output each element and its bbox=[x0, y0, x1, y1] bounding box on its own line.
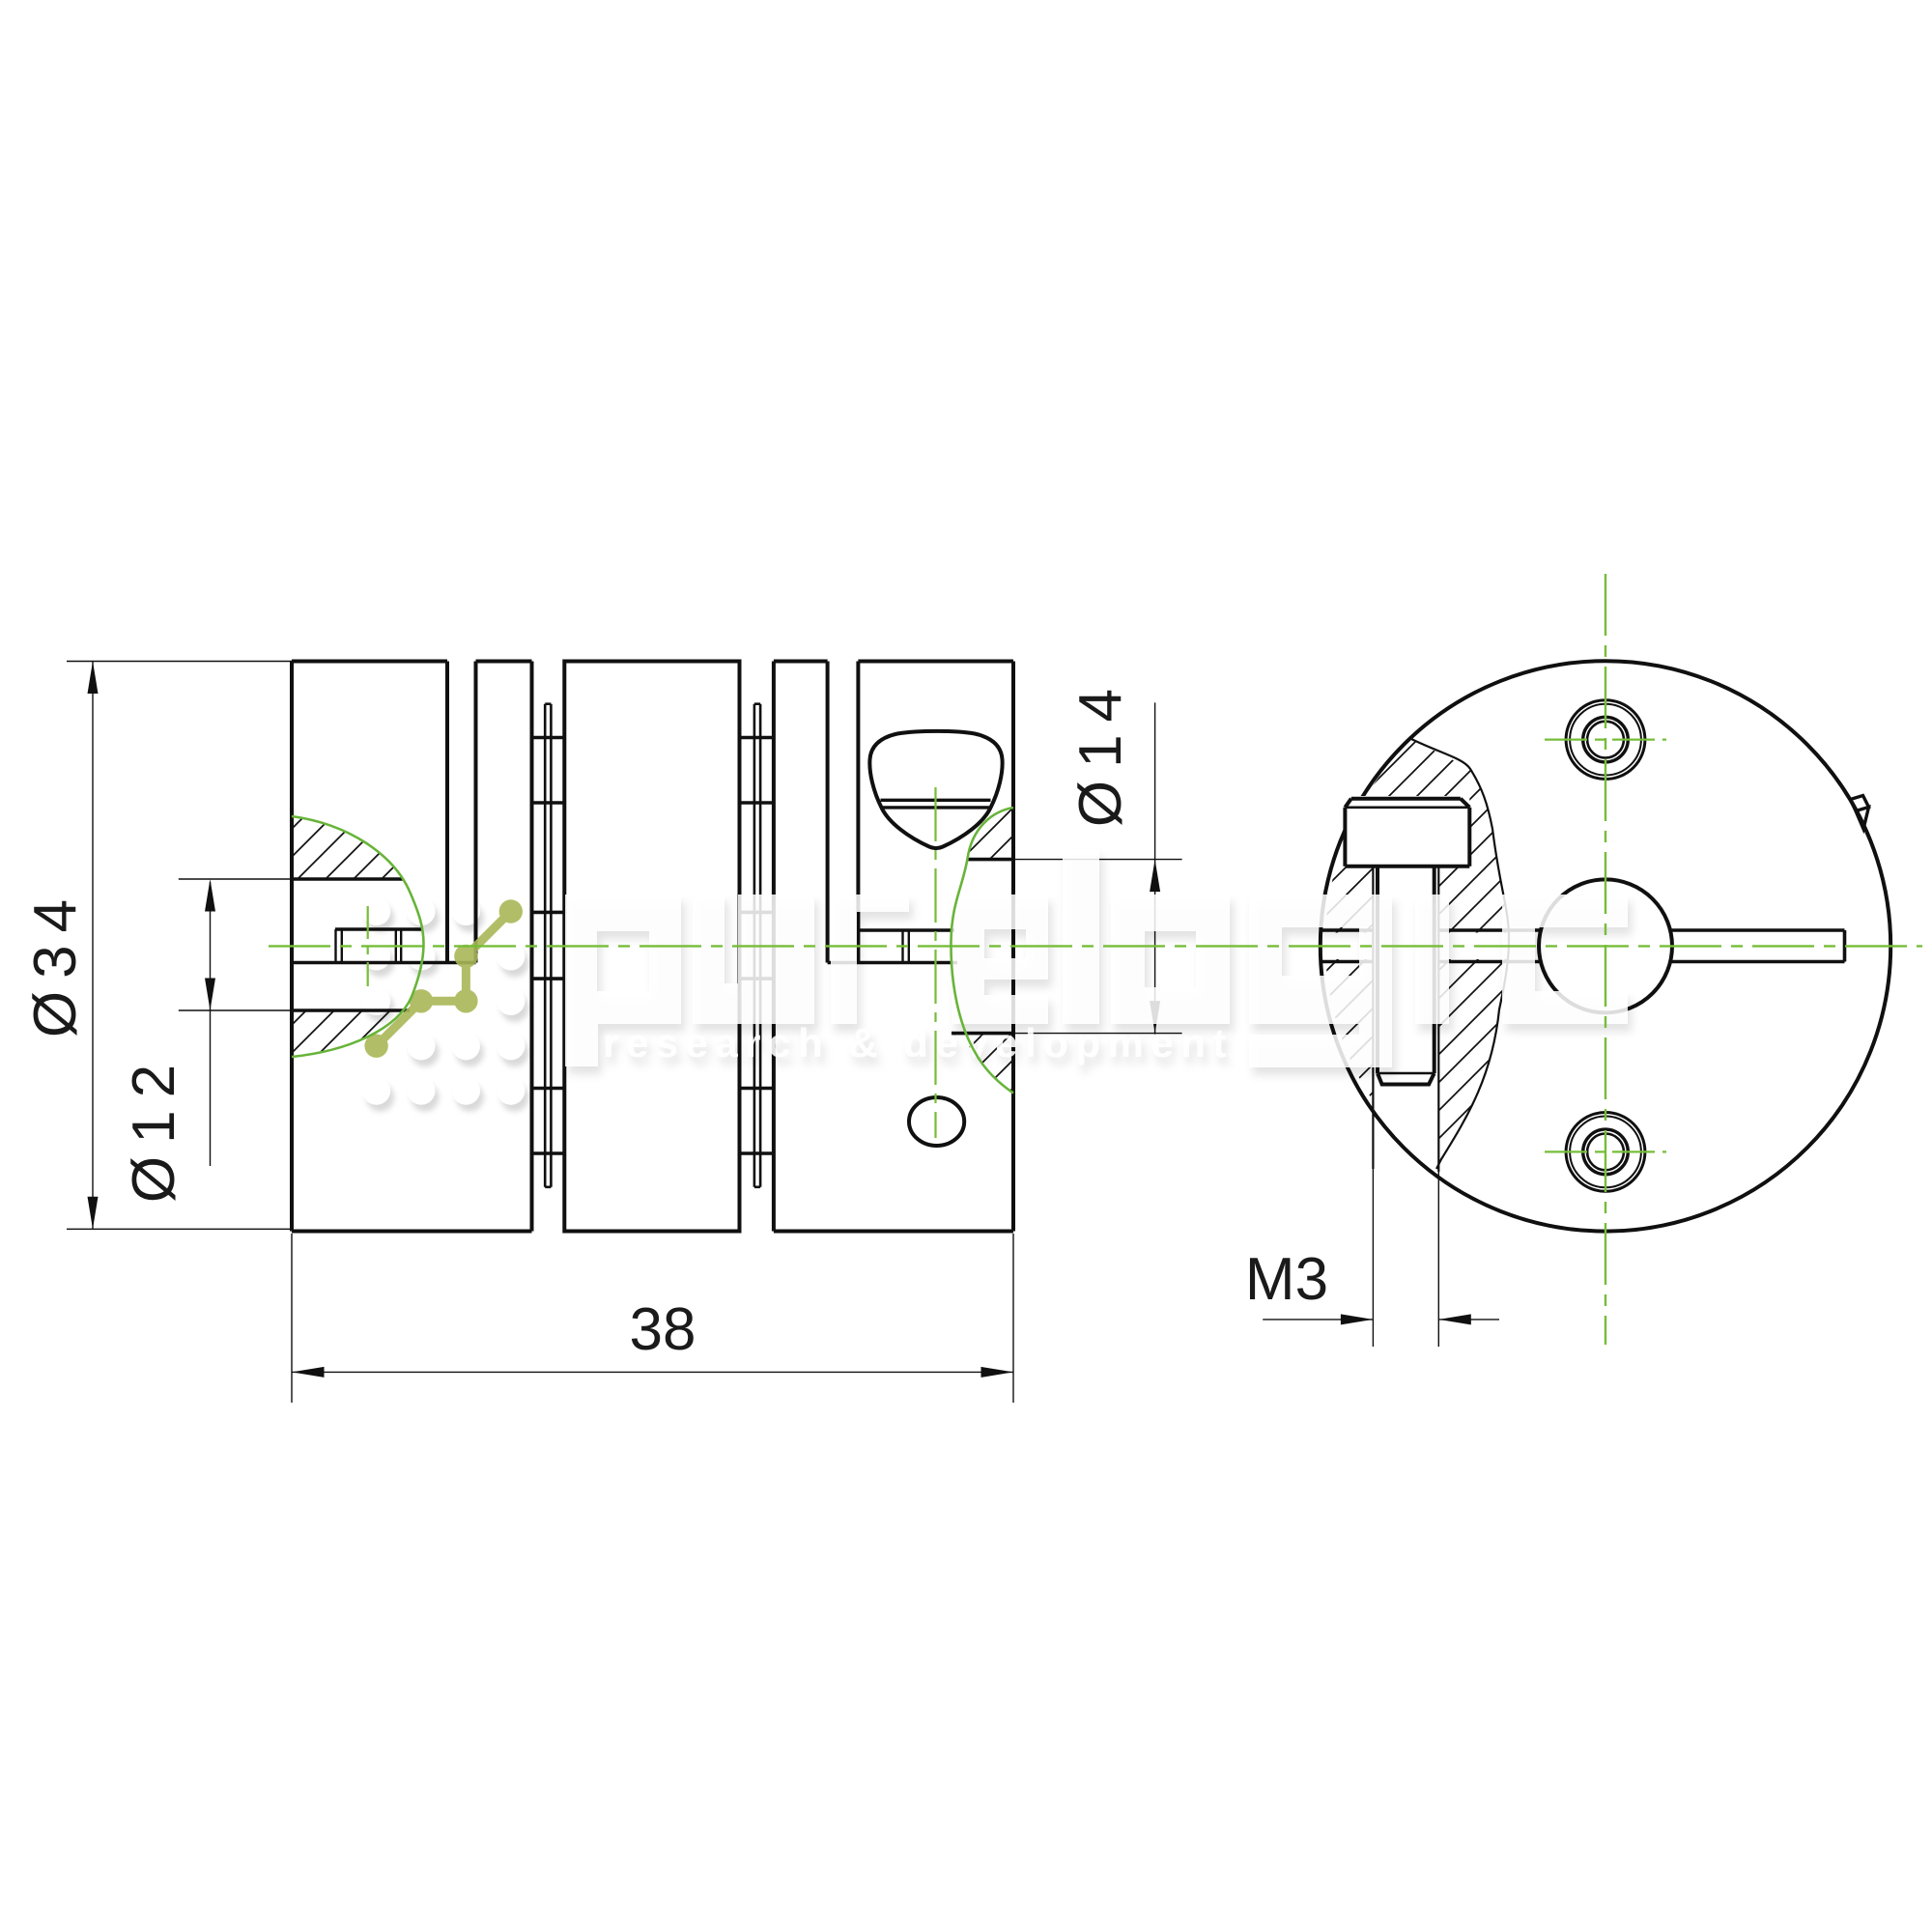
svg-text:Ø34: Ø34 bbox=[22, 887, 89, 1037]
svg-text:Ø14: Ø14 bbox=[1067, 676, 1134, 827]
svg-text:M3: M3 bbox=[1245, 1246, 1328, 1313]
svg-text:Ø12: Ø12 bbox=[121, 1052, 187, 1203]
svg-text:research & development: research & development bbox=[603, 1020, 1234, 1065]
svg-text:38: 38 bbox=[630, 1296, 696, 1363]
